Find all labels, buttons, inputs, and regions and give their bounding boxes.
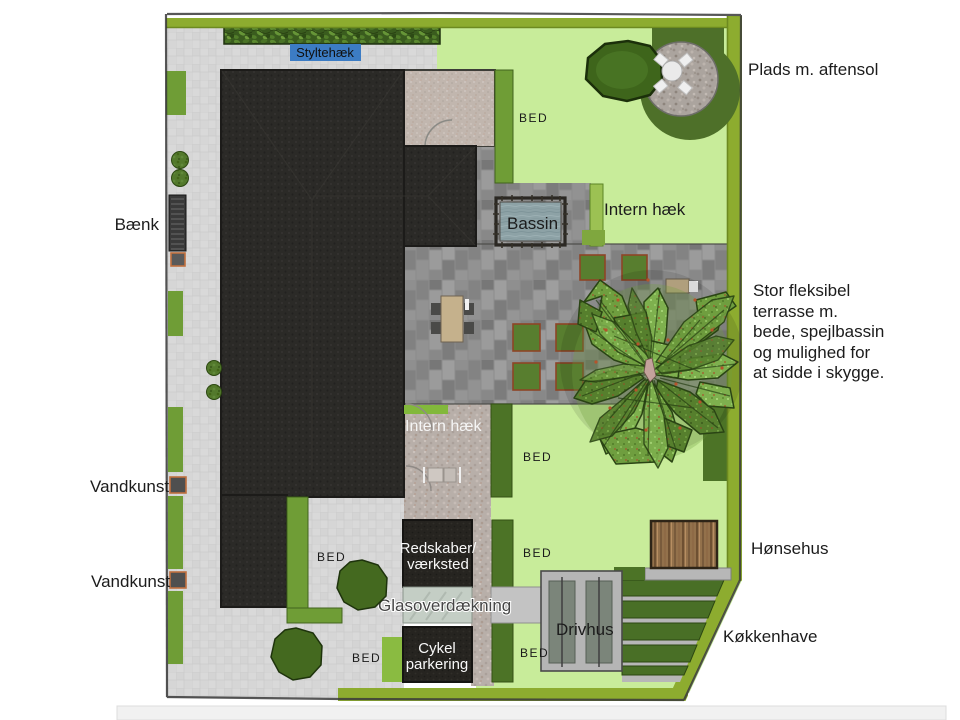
svg-text:Vandkunst: Vandkunst (91, 572, 170, 591)
svg-text:Køkkenhave: Køkkenhave (723, 627, 818, 646)
svg-text:at sidde i skygge.: at sidde i skygge. (753, 363, 884, 382)
svg-text:Intern hæk: Intern hæk (405, 418, 482, 435)
svg-text:BED: BED (519, 111, 548, 125)
svg-text:Stor fleksibel: Stor fleksibel (753, 281, 850, 300)
svg-text:Bassin: Bassin (507, 214, 558, 233)
svg-text:Redskaber/: Redskaber/ (400, 540, 478, 557)
svg-text:Cykel: Cykel (418, 640, 456, 657)
svg-text:Glasoverdækning: Glasoverdækning (378, 596, 511, 615)
svg-text:Bænk: Bænk (115, 215, 160, 234)
svg-text:Vandkunst: Vandkunst (90, 477, 169, 496)
svg-text:BED: BED (523, 450, 552, 464)
svg-text:Styltehæk: Styltehæk (296, 45, 354, 60)
svg-text:Plads m. aftensol: Plads m. aftensol (748, 60, 878, 79)
svg-text:bede, spejlbassin: bede, spejlbassin (753, 322, 884, 341)
svg-text:værksted: værksted (407, 556, 469, 573)
svg-text:Hønsehus: Hønsehus (751, 539, 828, 558)
svg-text:og mulighed for: og mulighed for (753, 343, 871, 362)
svg-text:BED: BED (352, 651, 381, 665)
svg-text:Drivhus: Drivhus (556, 620, 614, 639)
svg-text:parkering: parkering (406, 656, 469, 673)
svg-text:BED: BED (317, 550, 346, 564)
svg-text:BED: BED (523, 546, 552, 560)
svg-text:BED: BED (520, 646, 549, 660)
svg-text:Intern hæk: Intern hæk (604, 200, 686, 219)
svg-text:terrasse m.: terrasse m. (753, 302, 838, 321)
